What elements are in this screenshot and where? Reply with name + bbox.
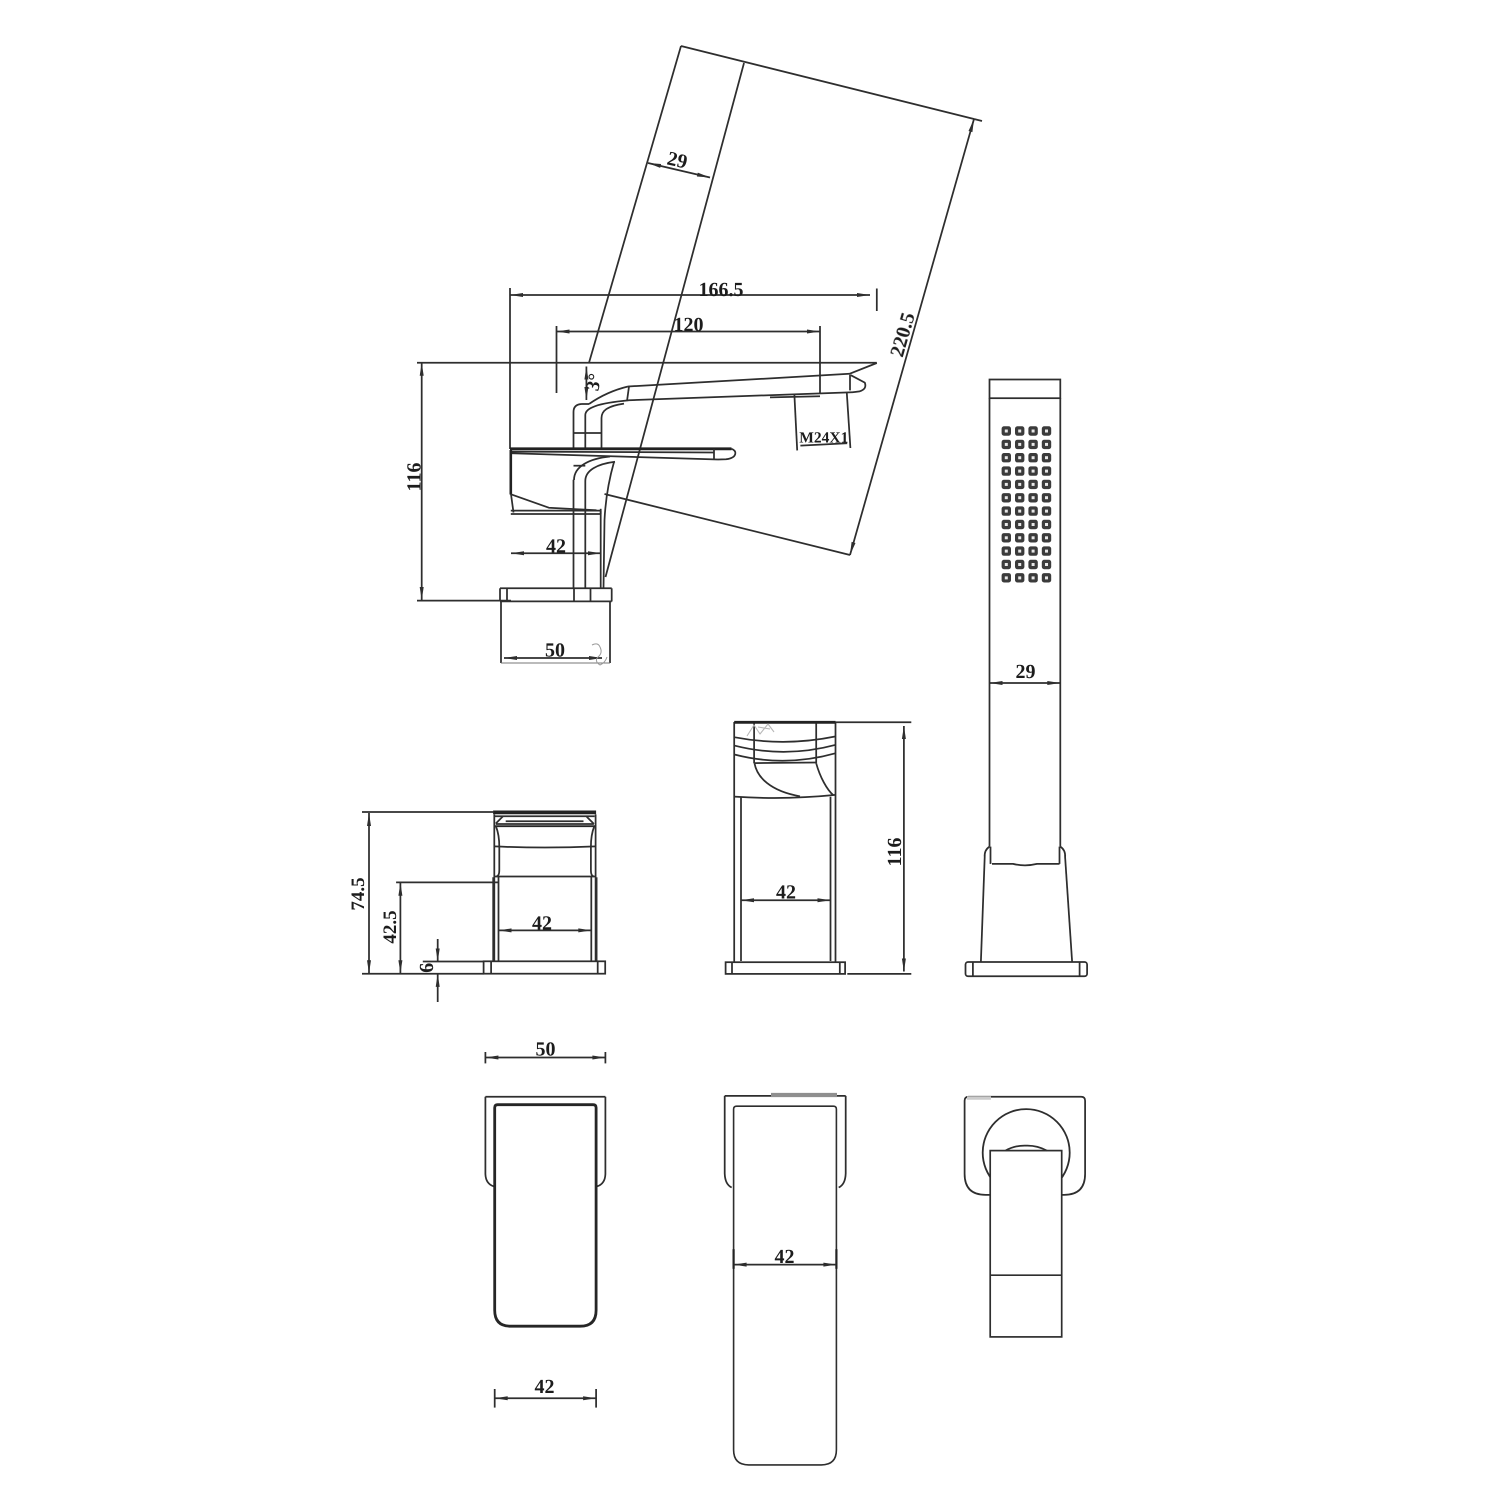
svg-text:M24X1: M24X1 (799, 430, 848, 447)
svg-text:42: 42 (775, 1246, 795, 1268)
svg-text:116: 116 (404, 463, 426, 492)
svg-text:74.5: 74.5 (348, 877, 369, 910)
svg-text:166.5: 166.5 (699, 279, 744, 301)
svg-text:42: 42 (776, 882, 796, 904)
svg-text:42: 42 (532, 912, 552, 934)
svg-text:42.5: 42.5 (380, 910, 401, 943)
svg-text:116: 116 (884, 838, 906, 867)
svg-text:6: 6 (416, 963, 438, 973)
svg-text:120: 120 (674, 314, 704, 336)
svg-text:29: 29 (1016, 661, 1036, 683)
svg-text:42: 42 (546, 536, 566, 558)
svg-text:50: 50 (536, 1039, 556, 1061)
svg-text:50: 50 (545, 640, 565, 662)
svg-text:42: 42 (535, 1376, 555, 1398)
